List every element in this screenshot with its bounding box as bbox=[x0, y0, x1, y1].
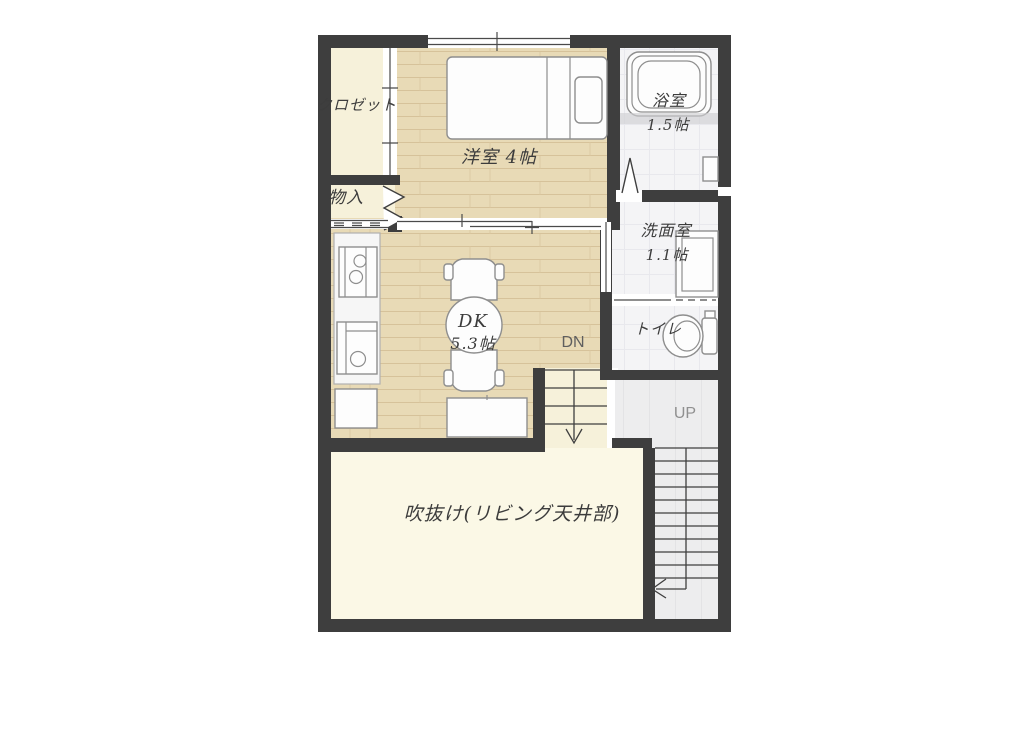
void-label: 吹抜け(リビング天井部) bbox=[404, 503, 621, 525]
wall-closet-divider bbox=[331, 175, 400, 185]
chair-bottom bbox=[451, 350, 497, 391]
base-cabinet bbox=[335, 389, 377, 428]
bedroom-furniture bbox=[447, 57, 607, 139]
sideboard bbox=[447, 398, 527, 437]
toilet-tank bbox=[702, 318, 717, 354]
chair-bottom-arm-right bbox=[495, 370, 504, 386]
wall-outer-bottom bbox=[318, 619, 731, 632]
wall-void-right bbox=[643, 448, 655, 619]
bath-shelf bbox=[703, 157, 718, 181]
wall-toilet-bottom bbox=[612, 370, 731, 380]
dn-label: DN bbox=[561, 334, 584, 351]
closet-label: クロゼット bbox=[317, 96, 397, 114]
wall-void-cap bbox=[612, 438, 652, 448]
chair-top-arm-right bbox=[495, 264, 504, 280]
kitchen bbox=[334, 233, 380, 428]
up-stair-floor-upper bbox=[615, 380, 718, 440]
dk-size: 5.3帖 bbox=[450, 334, 496, 353]
up-label: UP bbox=[674, 405, 696, 422]
western-room-label: 洋室 4帖 bbox=[461, 147, 539, 168]
floor-plan-drawing: クロゼット 物入 洋室 4帖 浴室 1.5帖 洗面室 1.1帖 トイレ DK 5… bbox=[0, 0, 1024, 731]
wall-dk-void bbox=[318, 438, 545, 452]
wall-outer-left bbox=[318, 35, 331, 632]
toilet-flush-button bbox=[705, 311, 715, 318]
toilet-label: トイレ bbox=[634, 320, 682, 338]
chair-bottom-arm-left bbox=[444, 370, 453, 386]
wall-dn-left bbox=[533, 368, 545, 452]
up-stair-floor-lower bbox=[652, 440, 718, 619]
bathroom-size: 1.5帖 bbox=[647, 116, 691, 134]
bed-pillow bbox=[575, 77, 602, 123]
bathroom-label: 浴室 bbox=[652, 91, 687, 110]
window-top bbox=[428, 35, 570, 48]
washroom-size: 1.1帖 bbox=[646, 246, 690, 264]
washroom-label: 洗面室 bbox=[640, 221, 692, 240]
dk-label: DK bbox=[457, 311, 488, 332]
chair-top-arm-left bbox=[444, 264, 453, 280]
storage-label: 物入 bbox=[328, 188, 364, 208]
floor-plan-page: クロゼット 物入 洋室 4帖 浴室 1.5帖 洗面室 1.1帖 トイレ DK 5… bbox=[0, 0, 1024, 731]
right-wall-notch bbox=[718, 187, 731, 196]
void-floor bbox=[331, 448, 643, 619]
chair-top bbox=[451, 259, 497, 300]
bedroom-dk-slider bbox=[397, 218, 607, 230]
wall-outer-right bbox=[718, 35, 731, 632]
